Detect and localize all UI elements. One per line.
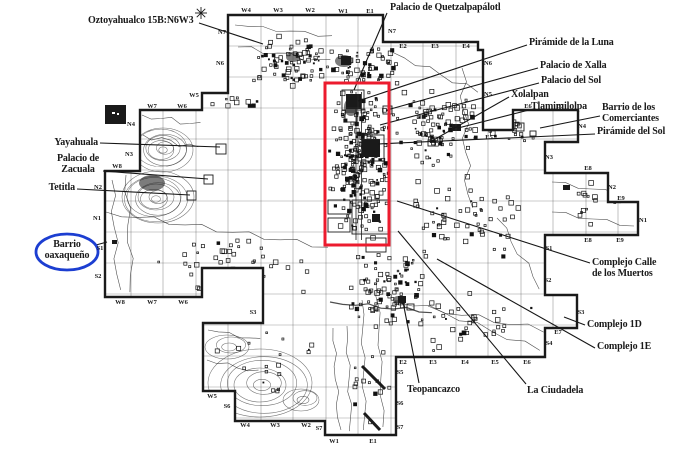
grid-label-W4: W4 xyxy=(240,422,251,429)
leader-xolalpan xyxy=(430,97,509,142)
teotihuacan-map-figure: W4W3W2W1E1N7N6W5W7W6N4N3W8N2N1S1S2W8W7W6… xyxy=(0,0,700,451)
grid-label-W2: W2 xyxy=(305,7,315,14)
grid-label-S7: S7 xyxy=(316,425,324,432)
site-label-palacio-del-sol: Palacio del Sol xyxy=(541,76,601,87)
site-label-complejo-1e: Complejo 1E xyxy=(597,342,651,353)
site-label-tlamimilolpa: Tlamimilolpa xyxy=(531,102,587,113)
leader-barrio-de-los-comerciantes xyxy=(540,116,600,128)
site-label-piramide-de-la-luna: Pirámide de la Luna xyxy=(529,38,614,49)
site-label-barrio-oaxaqueno: Barriooaxaqueño xyxy=(27,240,107,261)
grid-label-S2: S2 xyxy=(95,273,102,280)
grid-label-W2: W2 xyxy=(301,422,311,429)
grid-label-S3: S3 xyxy=(578,309,586,316)
grid-label-N5: N5 xyxy=(484,91,493,98)
site-label-teopancazco: Teopancazco xyxy=(407,385,460,396)
grid-label-E1: E1 xyxy=(366,8,374,15)
grid-label-E8: E8 xyxy=(584,237,592,244)
grid-label-E9: E9 xyxy=(617,195,625,202)
leader-tlamimilolpa xyxy=(458,110,529,128)
grid-label-N6: N6 xyxy=(484,60,493,67)
grid-label-W1: W1 xyxy=(329,438,339,445)
site-label-oztoyahualco: Oztoyahualco 15B:N6W3 xyxy=(88,16,193,27)
grid-label-E1: E1 xyxy=(369,438,377,445)
grid-label-E5: E5 xyxy=(485,134,493,141)
grid-label-W3: W3 xyxy=(270,422,281,429)
grid-label-S5: S5 xyxy=(397,369,405,376)
leader-palacio-quetzalpapalotl xyxy=(354,13,387,90)
grid-label-W3: W3 xyxy=(273,7,284,14)
grid-label-N1: N1 xyxy=(639,217,647,224)
grid-label-W7: W7 xyxy=(147,299,158,306)
grid-label-E2: E2 xyxy=(399,359,407,366)
grid-label-N6: N6 xyxy=(216,60,225,67)
grid-label-S3: S3 xyxy=(250,309,258,316)
grid-label-N7: N7 xyxy=(388,28,397,35)
north-star-icon xyxy=(195,7,207,19)
grid-label-N2: N2 xyxy=(94,184,102,191)
grid-label-S6: S6 xyxy=(224,403,232,410)
grid-label-S7: S7 xyxy=(397,424,405,431)
grid-label-W8: W8 xyxy=(112,163,123,170)
grid-label-E4: E4 xyxy=(461,359,469,366)
grid-label-N2: N2 xyxy=(608,184,616,191)
site-label-yayahuala: Yayahuala xyxy=(30,138,98,149)
site-label-tetitla: Tetitla xyxy=(20,183,75,194)
grid-label-E2: E2 xyxy=(399,43,407,50)
site-label-complejo-1d: Complejo 1D xyxy=(587,320,642,331)
site-label-la-ciudadela: La Ciudadela xyxy=(527,386,583,397)
grid-label-W4: W4 xyxy=(241,7,252,14)
grid-label-E3: E3 xyxy=(431,43,439,50)
grid-label-W5: W5 xyxy=(207,393,218,400)
grid-label-E3: E3 xyxy=(429,359,437,366)
site-label-palacio-de-xalla: Palacio de Xalla xyxy=(540,61,606,72)
leader-teopancazco xyxy=(403,302,419,383)
grid-label-N7: N7 xyxy=(218,29,227,36)
grid-label-E7: E7 xyxy=(554,329,562,336)
grid-label-W6: W6 xyxy=(177,103,188,110)
grid-label-N1: N1 xyxy=(93,215,101,222)
grid-label-E6: E6 xyxy=(523,359,531,366)
site-label-complejo-calle-de-los-muertos: Complejo Callede los Muertos xyxy=(592,258,656,279)
grid-label-S6: S6 xyxy=(397,400,405,407)
grid-label-W5: W5 xyxy=(189,92,200,99)
grid-label-N3: N3 xyxy=(545,154,554,161)
site-label-piramide-del-sol: Pirámide del Sol xyxy=(597,127,665,138)
site-label-palacio-quetzalpapalotl: Palacio de Quetzalpapálotl xyxy=(390,3,501,14)
grid-label-S2: S2 xyxy=(545,277,552,284)
grid-label-W7: W7 xyxy=(147,103,158,110)
grid-label-W6: W6 xyxy=(178,299,189,306)
grid-label-W1: W1 xyxy=(338,8,348,15)
grid-label-N4: N4 xyxy=(578,123,587,130)
legend-square xyxy=(105,105,126,124)
site-label-barrio-de-los-comerciantes: Barrio de losComerciantes xyxy=(602,103,659,124)
grid-label-E9: E9 xyxy=(616,237,624,244)
grid-label-E4: E4 xyxy=(462,43,470,50)
leader-complejo-1d xyxy=(564,317,585,325)
leader-yayahuala xyxy=(100,143,220,147)
grid-square-labels: W4W3W2W1E1N7N6W5W7W6N4N3W8N2N1S1S2W8W7W6… xyxy=(93,7,647,445)
grid-label-S4: S4 xyxy=(546,340,554,347)
grid-label-N3: N3 xyxy=(125,151,134,158)
site-label-palacio-de-zacuala: Palacio deZacuala xyxy=(44,154,112,175)
grid-label-E5: E5 xyxy=(491,359,499,366)
site-label-xolalpan: Xolalpan xyxy=(511,90,549,101)
grid-label-N4: N4 xyxy=(127,121,136,128)
grid-label-E8: E8 xyxy=(584,165,592,172)
grid-label-S1: S1 xyxy=(546,245,553,252)
grid-label-W8: W8 xyxy=(115,299,126,306)
